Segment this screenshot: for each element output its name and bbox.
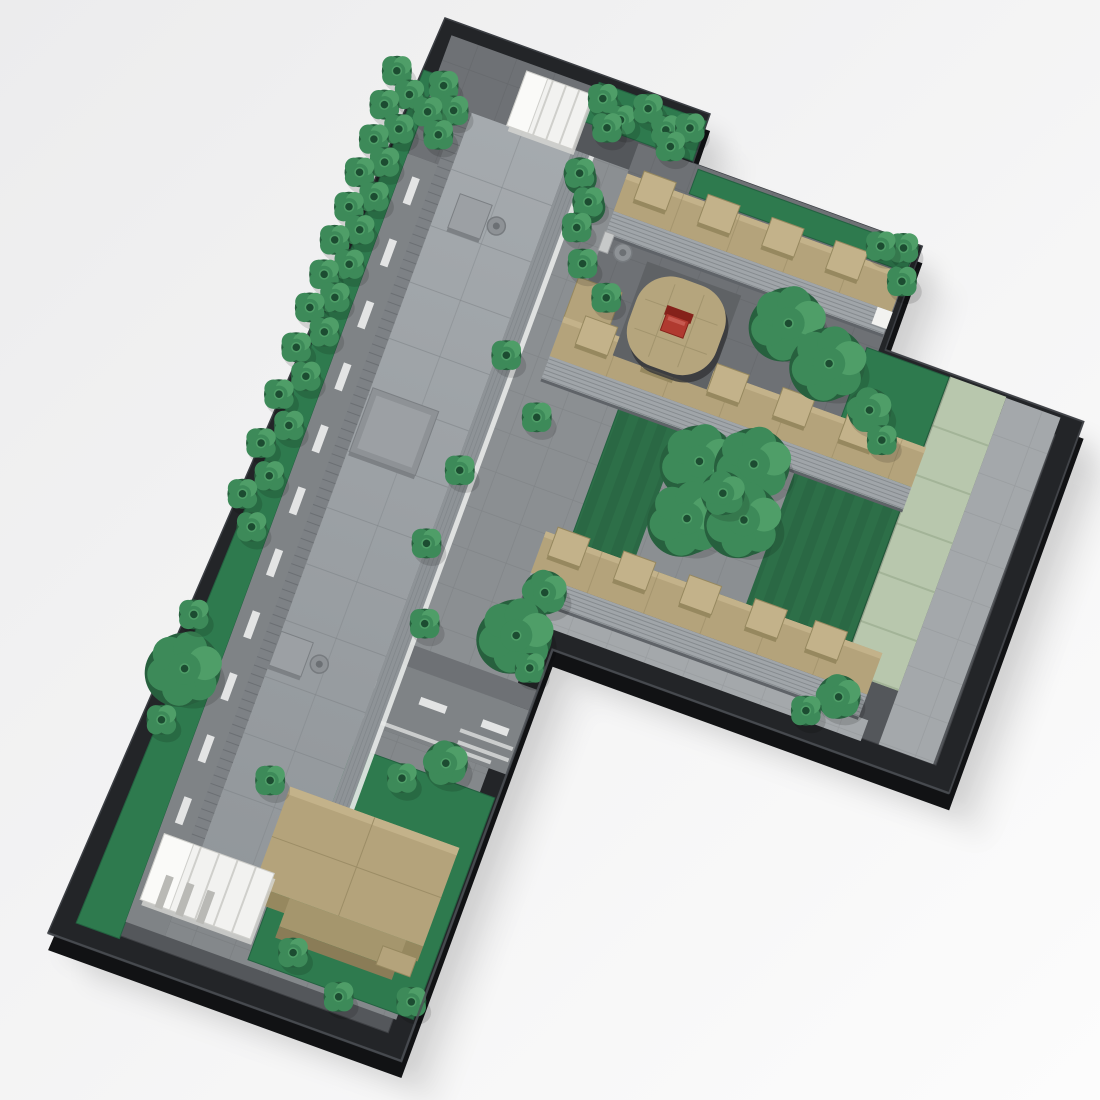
render-canvas — [0, 0, 1100, 1100]
lego-moc-aerial-render: Aerial render of a LEGO architecture mod… — [0, 0, 1100, 1100]
